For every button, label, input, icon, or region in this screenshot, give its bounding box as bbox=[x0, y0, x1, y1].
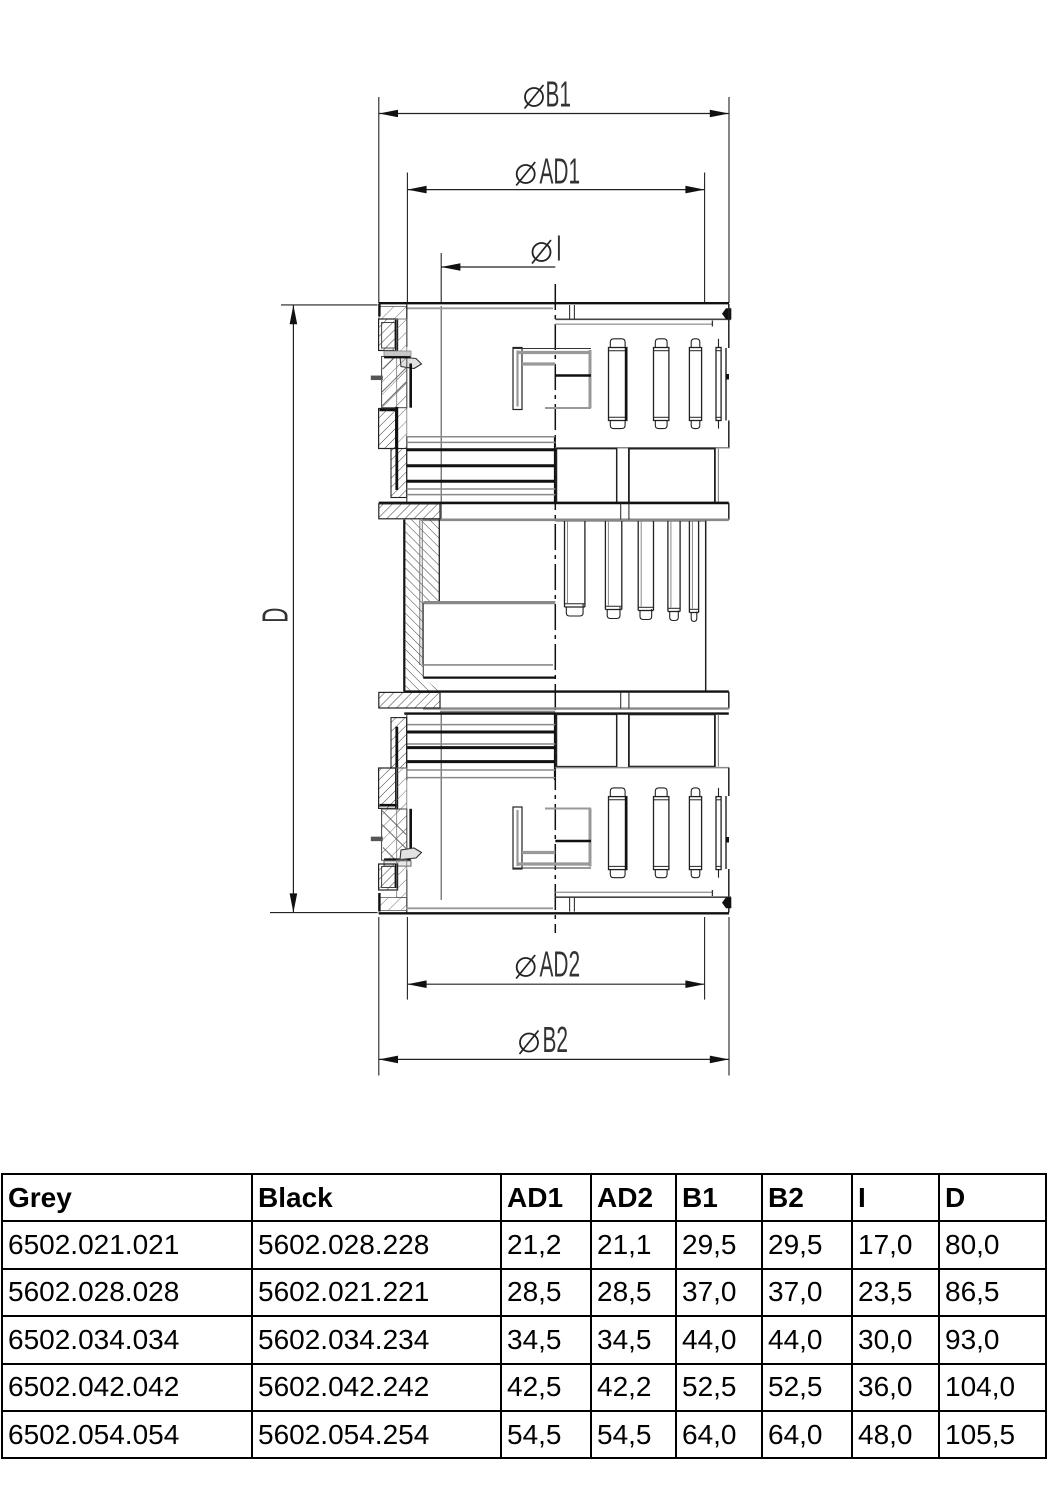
svg-text:D: D bbox=[256, 608, 296, 623]
svg-text:B1: B1 bbox=[546, 75, 572, 115]
svg-text:I: I bbox=[556, 229, 562, 269]
svg-text:AD2: AD2 bbox=[540, 945, 581, 985]
svg-text:B2: B2 bbox=[543, 1020, 569, 1060]
svg-text:AD1: AD1 bbox=[540, 152, 581, 192]
